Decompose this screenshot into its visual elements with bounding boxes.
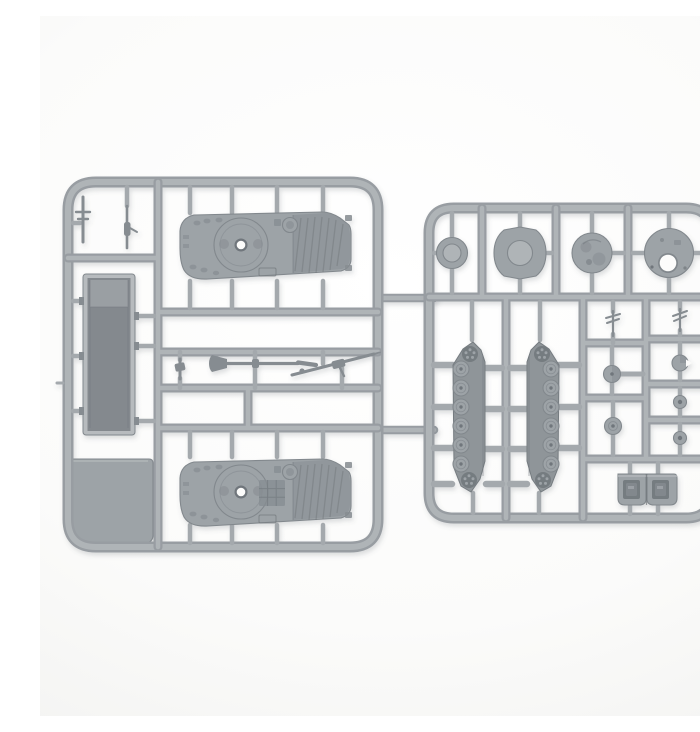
part-disc-detailed <box>572 233 612 273</box>
part-aerial-grid-right <box>673 309 687 331</box>
part-disc-large <box>494 227 546 279</box>
part-hull-tub <box>79 274 139 435</box>
part-disc-hole <box>645 229 694 278</box>
part-hull-top-a <box>180 212 352 279</box>
part-aerial-rod <box>124 206 137 248</box>
part-track-left <box>453 342 485 492</box>
part-wheel-with-bar <box>604 366 644 383</box>
sprue-photo-canvas <box>40 16 700 716</box>
part-track-right <box>527 342 559 492</box>
part-rear-doors <box>618 474 677 505</box>
part-mg <box>174 359 185 379</box>
right-sprue <box>429 208 700 518</box>
left-sprue <box>57 182 434 547</box>
part-aerial-cross <box>76 197 90 242</box>
part-disc-notched <box>672 355 692 371</box>
part-small-wheel-1 <box>674 396 687 409</box>
part-small-wheel-2 <box>674 432 687 445</box>
part-floor-panel <box>67 459 153 546</box>
part-aerial-grid-left <box>606 311 620 336</box>
part-disc-small <box>437 238 468 269</box>
part-hull-top-b <box>180 459 352 526</box>
sprue-photo <box>40 16 700 716</box>
part-wheel-plain <box>605 418 622 435</box>
